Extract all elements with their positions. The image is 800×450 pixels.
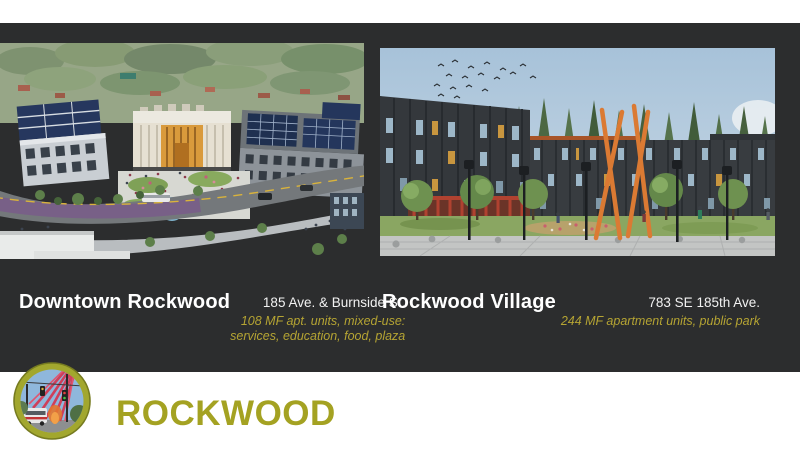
left-building-solar-roof	[17, 99, 110, 186]
downtown-rockwood-description-line-1: 108 MF apt. units, mixed-use:	[230, 314, 405, 329]
center-civic-building	[133, 104, 231, 172]
rockwood-village-caption: Rockwood Village 783 SE 185th Ave. 244 M…	[382, 290, 760, 329]
downtown-rockwood-meta: 185 Ave. & Burnside St. 108 MF apt. unit…	[230, 290, 405, 344]
village-rendering-svg	[380, 48, 775, 256]
rockwood-village-meta: 783 SE 185th Ave. 244 MF apartment units…	[561, 290, 760, 329]
downtown-rockwood-description-line-2: services, education, food, plaza	[230, 329, 405, 344]
downtown-rockwood-caption: Downtown Rockwood 185 Ave. & Burnside St…	[19, 290, 377, 344]
dark-background-panel: Downtown Rockwood 185 Ave. & Burnside St…	[0, 23, 800, 372]
rockwood-logo-svg	[13, 362, 91, 440]
rockwood-village-rendering-image	[380, 48, 775, 256]
park-foreground	[380, 216, 775, 256]
left-dark-building	[380, 96, 530, 224]
downtown-rockwood-title: Downtown Rockwood	[19, 290, 230, 314]
downtown-rockwood-rendering-image	[0, 43, 364, 259]
rockwood-village-address: 783 SE 185th Ave.	[561, 295, 760, 311]
downtown-rockwood-address: 185 Ave. & Burnside St.	[230, 295, 405, 311]
rockwood-village-title: Rockwood Village	[382, 290, 556, 314]
rockwood-village-description-line-1: 244 MF apartment units, public park	[561, 314, 760, 329]
slide-canvas: Downtown Rockwood 185 Ave. & Burnside St…	[0, 0, 800, 450]
rockwood-logo	[13, 362, 91, 440]
downtown-rendering-svg	[0, 43, 364, 259]
rockwood-wordmark: ROCKWOOD	[116, 394, 336, 434]
